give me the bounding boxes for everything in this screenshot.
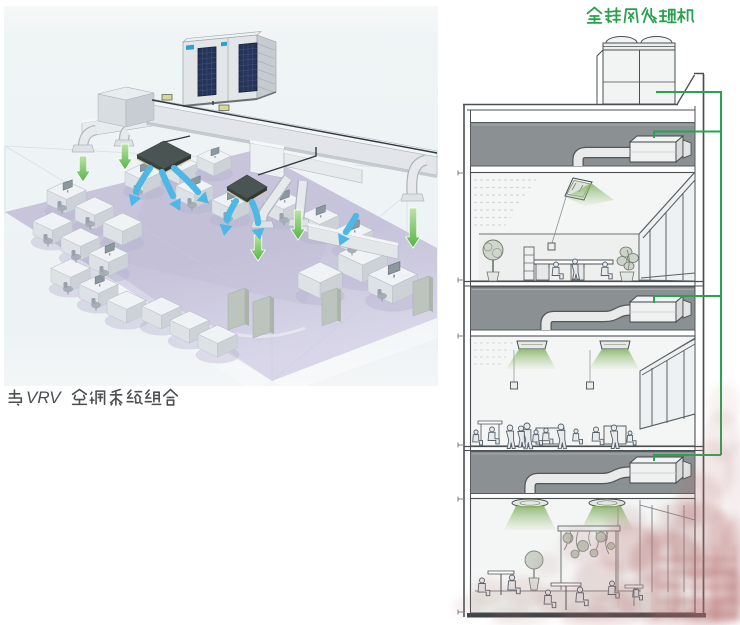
svg-text:VRV: VRV	[26, 388, 62, 407]
